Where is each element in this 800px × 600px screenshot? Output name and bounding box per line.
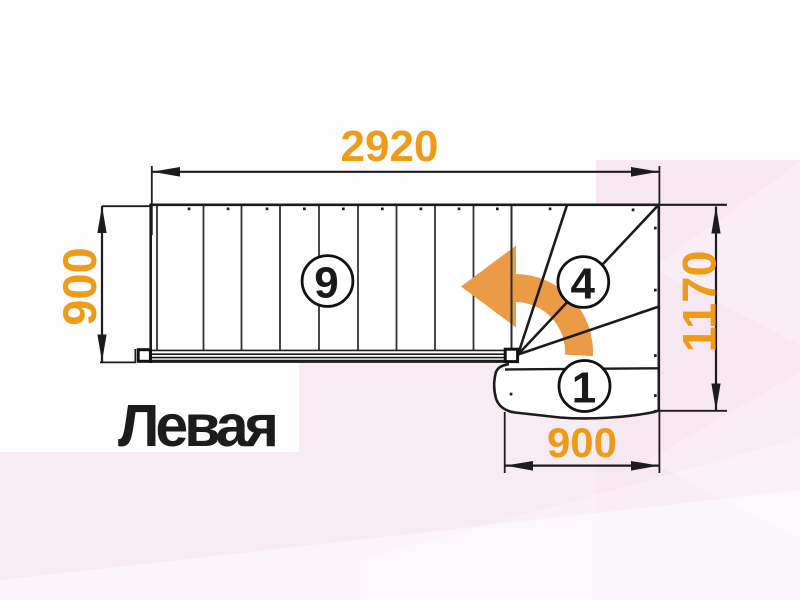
svg-text:4: 4	[570, 260, 595, 309]
svg-text:900: 900	[53, 247, 106, 325]
svg-text:1170: 1170	[673, 251, 726, 353]
svg-text:900: 900	[547, 419, 617, 466]
svg-text:1: 1	[572, 364, 596, 413]
svg-text:9: 9	[314, 259, 338, 308]
svg-text:2920: 2920	[341, 122, 439, 171]
svg-text:Левая: Левая	[118, 393, 276, 459]
